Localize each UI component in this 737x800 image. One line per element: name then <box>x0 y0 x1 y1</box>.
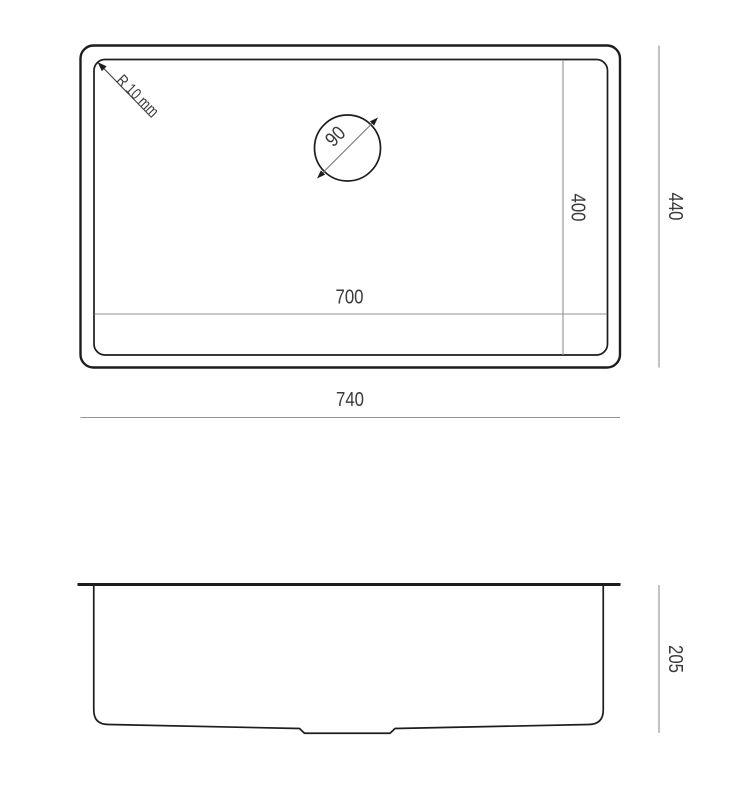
outer-rim-outline <box>81 46 621 368</box>
drain-diameter-dim-line <box>318 119 377 178</box>
bowl-profile <box>94 586 604 733</box>
side-view: 205 <box>78 585 687 734</box>
drain-diameter-label: 90 <box>321 122 350 151</box>
bowl-outline <box>94 60 608 356</box>
corner-radius-label: R 10 mm <box>113 72 162 121</box>
overall-width-label: 740 <box>336 389 364 411</box>
top-view: 90 R 10 mm 400 700 440 740 <box>81 46 687 418</box>
overall-height-label: 205 <box>664 645 686 673</box>
sink-dimension-drawing: 90 R 10 mm 400 700 440 740 <box>0 0 737 800</box>
bowl-depth-label: 400 <box>567 194 589 222</box>
bowl-width-label: 700 <box>336 287 364 309</box>
drawing-svg: 90 R 10 mm 400 700 440 740 <box>0 0 737 800</box>
overall-depth-label: 440 <box>664 193 686 221</box>
